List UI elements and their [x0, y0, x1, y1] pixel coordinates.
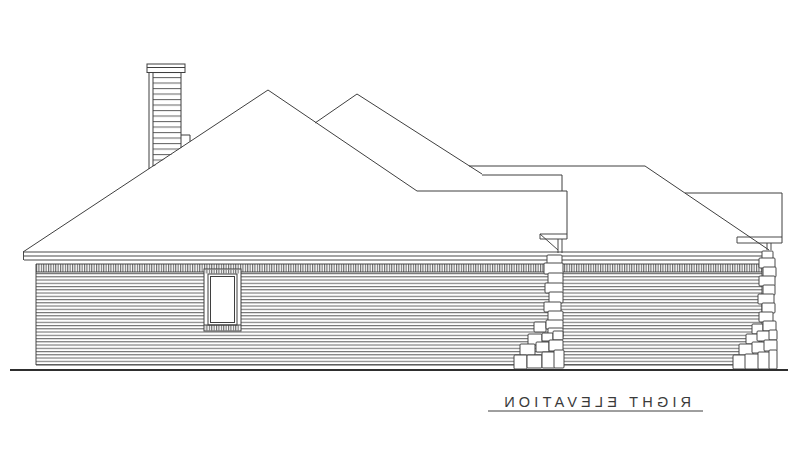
- right-elevation-drawing: RIGHT ELEVATION: [0, 0, 800, 449]
- sheet-background: [0, 0, 800, 449]
- window-sill: [205, 325, 240, 331]
- elevation-drawing-sheet: RIGHT ELEVATION: [0, 0, 800, 449]
- drawing-title: RIGHT ELEVATION: [500, 394, 691, 410]
- title-block: RIGHT ELEVATION: [488, 394, 703, 411]
- frieze-band: [36, 264, 762, 272]
- window-head-trim: [205, 270, 240, 274]
- window-outer-trim: [204, 269, 241, 331]
- lap-siding: [36, 273, 762, 366]
- window: [204, 269, 241, 331]
- chimney-cap: [147, 64, 185, 73]
- wall-face: [36, 264, 762, 365]
